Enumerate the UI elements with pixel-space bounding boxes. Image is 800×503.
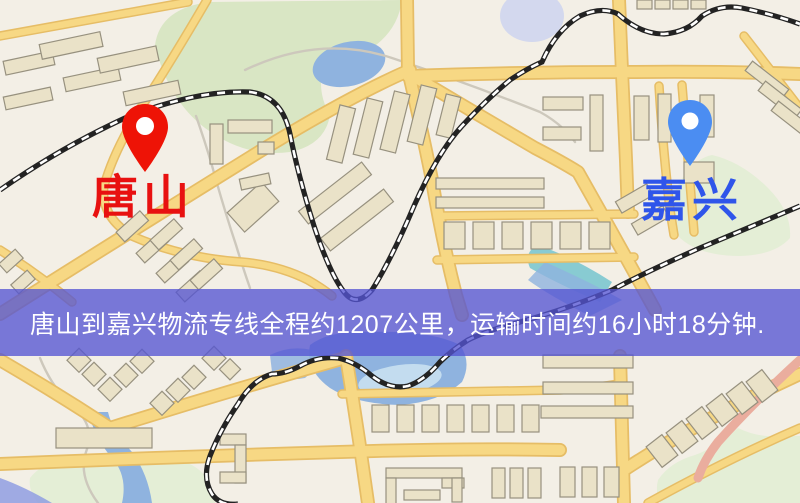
origin-pin-hole: [136, 117, 154, 135]
destination-label: 嘉兴: [641, 174, 743, 226]
route-info-text: 唐山到嘉兴物流专线全程约1207公里，运输时间约16小时18分钟.: [30, 305, 765, 341]
destination-pin-hole: [682, 113, 699, 130]
origin-pin-icon[interactable]: [122, 104, 168, 172]
map-image: 唐山 嘉兴: [0, 0, 800, 503]
origin-label: 唐山: [92, 171, 194, 223]
route-info-banner: 唐山到嘉兴物流专线全程约1207公里，运输时间约16小时18分钟.: [0, 289, 800, 356]
map-canvas[interactable]: 唐山 嘉兴 唐山到嘉兴物流专线全程约1207公里，运输时间约16小时18分钟.: [0, 0, 800, 503]
destination-pin-icon[interactable]: [668, 100, 712, 166]
